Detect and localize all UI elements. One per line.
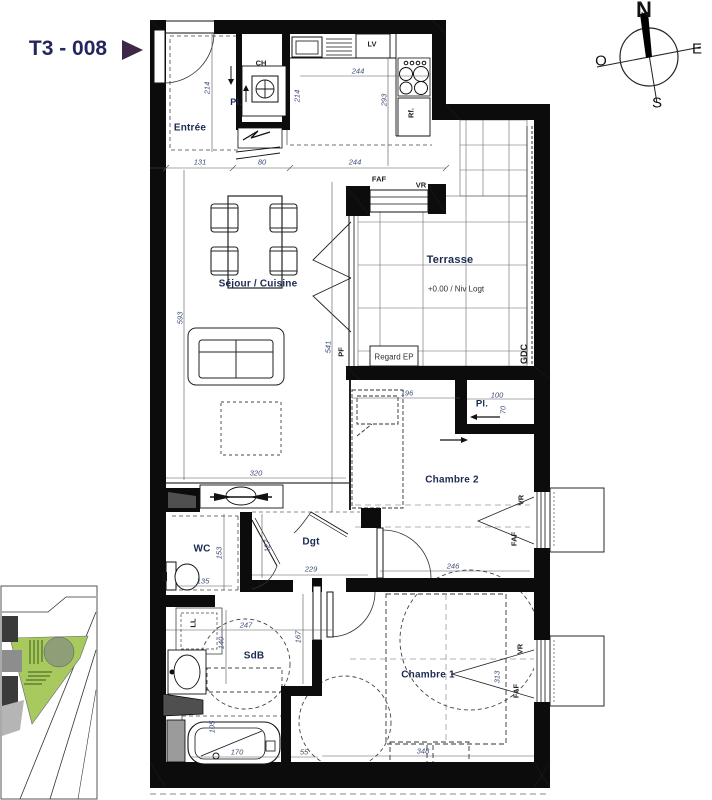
room-label-wc: WC — [193, 544, 210, 555]
dim-sejour-width: 320 — [250, 469, 263, 478]
dim-sdb-height: 140 — [217, 637, 226, 650]
dishwasher-tag: LV — [367, 40, 376, 49]
dim-hall-width: 80 — [258, 158, 266, 167]
window-tag-vr-terrasse: VR — [416, 181, 426, 190]
dim-pf-height: 541 — [324, 341, 333, 354]
dim-wc-width: 135 — [197, 577, 210, 586]
unit-arrow-icon — [122, 40, 143, 60]
unit-title: T3 - 008 — [29, 37, 107, 61]
pf-tag: PF — [337, 347, 346, 357]
window-tag-faf-chambre2: FAF — [510, 532, 519, 546]
compass-east-label: E — [692, 41, 702, 58]
closet-label-chambre2: Pl. — [476, 399, 488, 410]
dim-gap: 55 — [300, 748, 308, 757]
compass-north-label: N — [636, 0, 652, 23]
room-label-chambre2: Chambre 2 — [425, 475, 479, 486]
room-label-sejour-cuisine: Séjour / Cuisine — [219, 279, 298, 290]
dim-pl2-depth: 70 — [499, 406, 508, 414]
gdc-tag: GDC — [519, 344, 529, 364]
compass-west-label: O — [595, 53, 607, 70]
terrasse-tiles — [358, 120, 527, 366]
dim-wc-door: 127 — [263, 540, 272, 553]
dim-sejour-height: 593 — [176, 312, 185, 325]
dim-kitchen-depth: 214 — [293, 90, 302, 103]
room-label-chambre1: Chambre 1 — [401, 670, 455, 681]
washer-tag: LL — [189, 618, 198, 627]
window-tag-vr-chambre2: VR — [517, 495, 526, 505]
dim-sdb-door: 167 — [294, 631, 303, 644]
dim-chambre1-window: 313 — [493, 671, 502, 684]
regard-ep-label: Regard EP — [374, 353, 413, 362]
dim-entree-width: 131 — [194, 158, 207, 167]
room-label-dgt: Dgt — [302, 537, 319, 548]
closet-label-entree: Pl. — [230, 97, 242, 107]
dim-tub-width: 105 — [208, 721, 217, 734]
fridge-tag: Rf. — [407, 108, 416, 118]
site-map-inset — [1, 586, 97, 799]
dim-chambre2-bed: 196 — [401, 389, 414, 398]
window-tag-faf-chambre1: FAF — [512, 684, 521, 698]
dim-entree-height: 214 — [203, 82, 212, 95]
dim-dgt-width: 229 — [305, 565, 318, 574]
compass-rose — [597, 12, 701, 103]
dim-chambre2-width: 246 — [447, 562, 460, 571]
dim-pl2-width: 100 — [491, 391, 504, 400]
terrasse-railing — [527, 126, 532, 364]
window-tag-vr-chambre1: VR — [516, 644, 525, 654]
dim-kitchen-inner-width: 244 — [352, 67, 365, 76]
floorplan-drawing — [0, 0, 712, 800]
boiler-tag: CH — [256, 59, 267, 68]
dim-kitchen-height: 293 — [380, 94, 389, 107]
dimension-lines — [150, 34, 534, 757]
window-tag-faf-terrasse: FAF — [372, 175, 386, 184]
dim-sdb-width: 247 — [240, 621, 253, 630]
floorplan-page: T3 - 008 N E O S Entrée Séjour / Cuisine… — [0, 0, 712, 800]
room-label-sdb: SdB — [244, 651, 265, 662]
room-label-entree: Entrée — [174, 123, 206, 134]
dim-wc-height: 153 — [215, 547, 224, 560]
dim-tub-length: 170 — [231, 748, 244, 757]
room-label-terrasse: Terrasse — [427, 254, 474, 266]
kitchen-fixtures — [287, 34, 430, 136]
dim-chambre1-width: 348 — [417, 747, 430, 756]
terrasse-level-note: +0.00 / Niv Logt — [428, 285, 484, 294]
dim-kitchen-width: 244 — [349, 158, 362, 167]
compass-south-label: S — [652, 95, 662, 112]
